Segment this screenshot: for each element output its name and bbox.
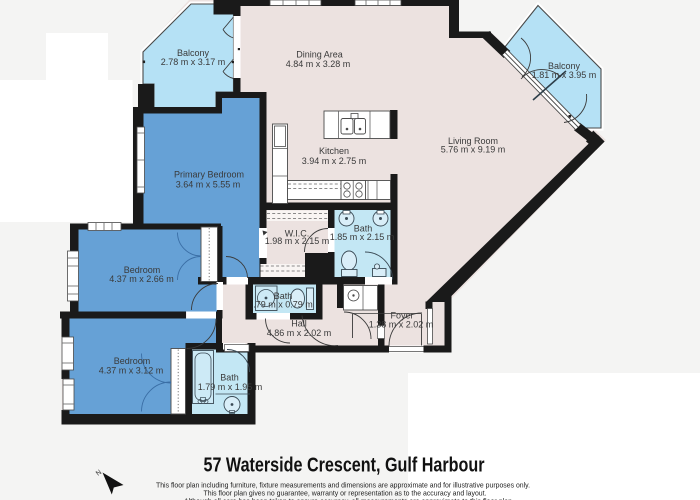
svg-text:Kitchen: Kitchen	[319, 146, 349, 156]
svg-text:1.85 m x 2.15 m: 1.85 m x 2.15 m	[330, 232, 395, 242]
svg-text:1.98 m x 2.15 m: 1.98 m x 2.15 m	[265, 236, 330, 246]
svg-text:1.81 m x 3.95 m: 1.81 m x 3.95 m	[532, 70, 597, 80]
svg-text:3.94 m x 2.75 m: 3.94 m x 2.75 m	[302, 156, 367, 166]
svg-text:57 Waterside Crescent, Gulf Ha: 57 Waterside Crescent, Gulf Harbour	[204, 454, 485, 477]
svg-text:1.38 m x 2.02 m: 1.38 m x 2.02 m	[369, 320, 434, 330]
svg-text:1.79 m x 1.95 m: 1.79 m x 1.95 m	[198, 382, 263, 392]
svg-text:Primary Bedroom: Primary Bedroom	[174, 170, 244, 180]
svg-text:4.84 m x 3.28 m: 4.84 m x 3.28 m	[286, 59, 351, 69]
svg-text:Dining Area: Dining Area	[296, 50, 343, 60]
svg-text:Hall: Hall	[291, 319, 307, 329]
svg-text:4.86 m x 2.02 m: 4.86 m x 2.02 m	[267, 328, 332, 338]
svg-text:Although all care has been tak: Although all care has been taken to ensu…	[184, 497, 514, 500]
svg-text:2.78 m x 3.17 m: 2.78 m x 3.17 m	[161, 57, 226, 67]
svg-text:4.37 m x 3.12 m: 4.37 m x 3.12 m	[99, 365, 164, 375]
svg-text:3.64 m x 5.55 m: 3.64 m x 5.55 m	[176, 180, 241, 190]
svg-text:Bath: Bath	[220, 373, 239, 383]
svg-text:.79 m x 0.79 m: .79 m x 0.79 m	[253, 300, 313, 310]
svg-text:5.76 m x 9.19 m: 5.76 m x 9.19 m	[441, 145, 506, 155]
svg-text:4.37 m x 2.66 m: 4.37 m x 2.66 m	[109, 274, 174, 284]
